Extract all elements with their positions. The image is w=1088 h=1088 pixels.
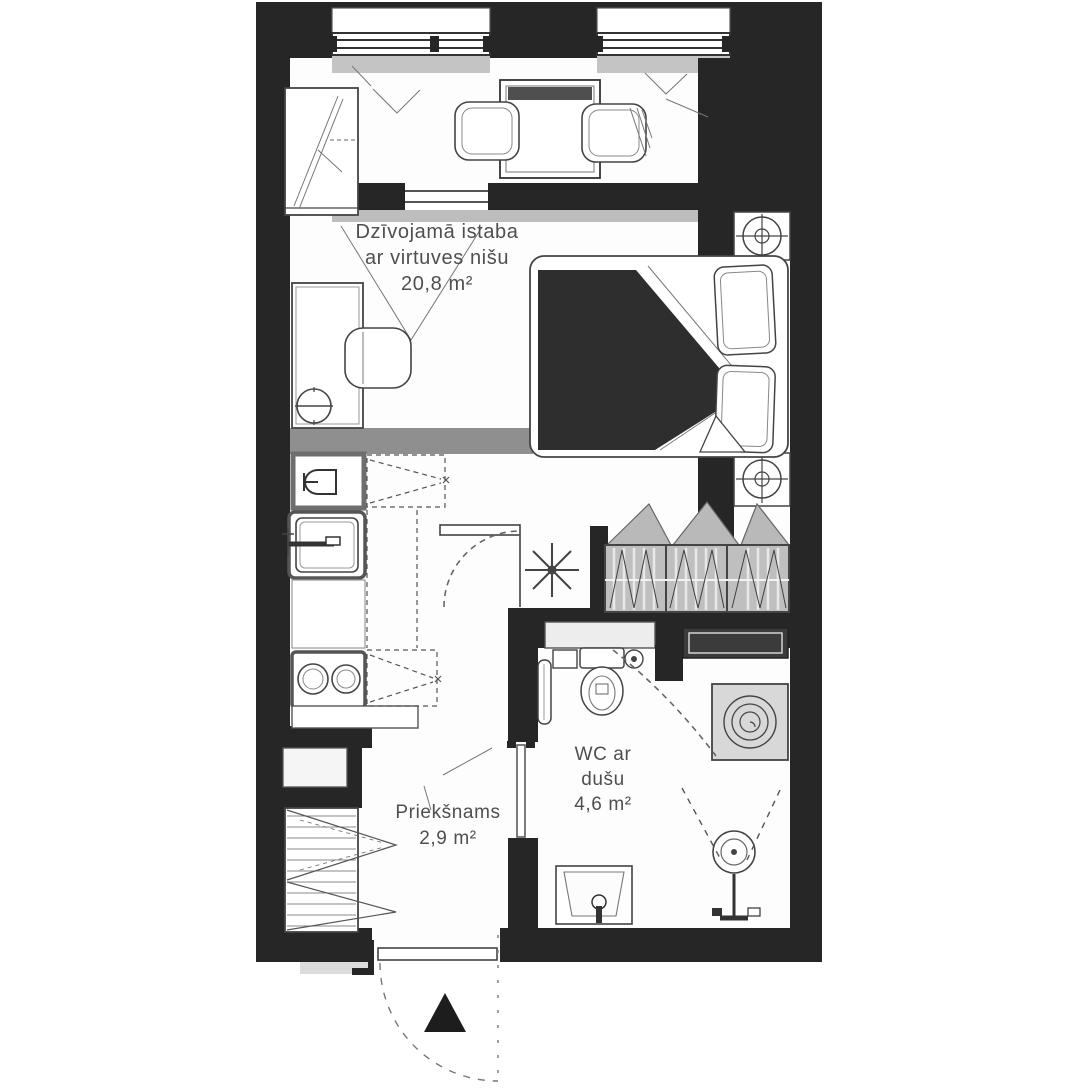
wc-door-leaf [517,745,525,837]
wall-bottom-right [500,928,822,962]
wall-window-pier [490,2,597,58]
balcony-band-right [488,183,737,210]
balcony-door [405,183,488,210]
entrance-door-leaf [378,948,497,960]
washbasin-icon [556,866,632,924]
towel-radiator [538,660,551,724]
wall-niche [283,748,347,787]
bathroom-label-line2: dušu [581,769,625,790]
kitchen-sink [282,512,365,578]
living-room-label-line2: ar virtuves nišu [365,247,509,269]
living-room-label-line1: Dzīvojamā istaba [356,221,519,243]
floor-plan-svg: Dzīvojamā istaba ar virtuves nišu 20,8 m… [0,0,1088,1088]
bed [530,256,788,457]
pillow [714,265,777,356]
entrance-door [352,935,498,1085]
ventilation-icon [734,212,790,260]
washing-machine-icon [712,684,788,760]
entrance-arrow-icon [424,993,466,1032]
shelf-light [545,622,655,648]
kitchen-counter [292,580,365,648]
window-recess-left [332,8,490,33]
chair [455,102,519,160]
light-point-icon [525,543,579,597]
stove [292,652,365,708]
door-lintel [440,525,520,535]
hallway-area: 2,9 m² [419,828,476,849]
kitchen-niche-beam [290,428,533,454]
chair [582,104,652,162]
extractor-fan-icon [625,650,643,668]
floor-plan: Dzīvojamā istaba ar virtuves nišu 20,8 m… [0,0,1088,1088]
kitchen-counter-end [292,706,418,728]
bathroom-label-line1: WC ar [575,744,632,765]
window-recess-right [597,8,730,33]
wall-right [790,2,822,962]
wall-wc-left-lower [508,838,538,930]
drying-cabinet [285,88,358,215]
desk-chair [345,328,411,388]
wall-wc-left-upper [508,608,538,742]
hallway-label: Priekšnams [395,802,500,823]
window-right-icon [594,33,731,55]
window-left-icon [328,33,492,55]
bathroom-area: 4,6 m² [574,794,631,815]
ventilation-icon [734,453,790,506]
kitchen-cabinet-glass [293,454,364,508]
living-room-area: 20,8 m² [401,273,473,295]
